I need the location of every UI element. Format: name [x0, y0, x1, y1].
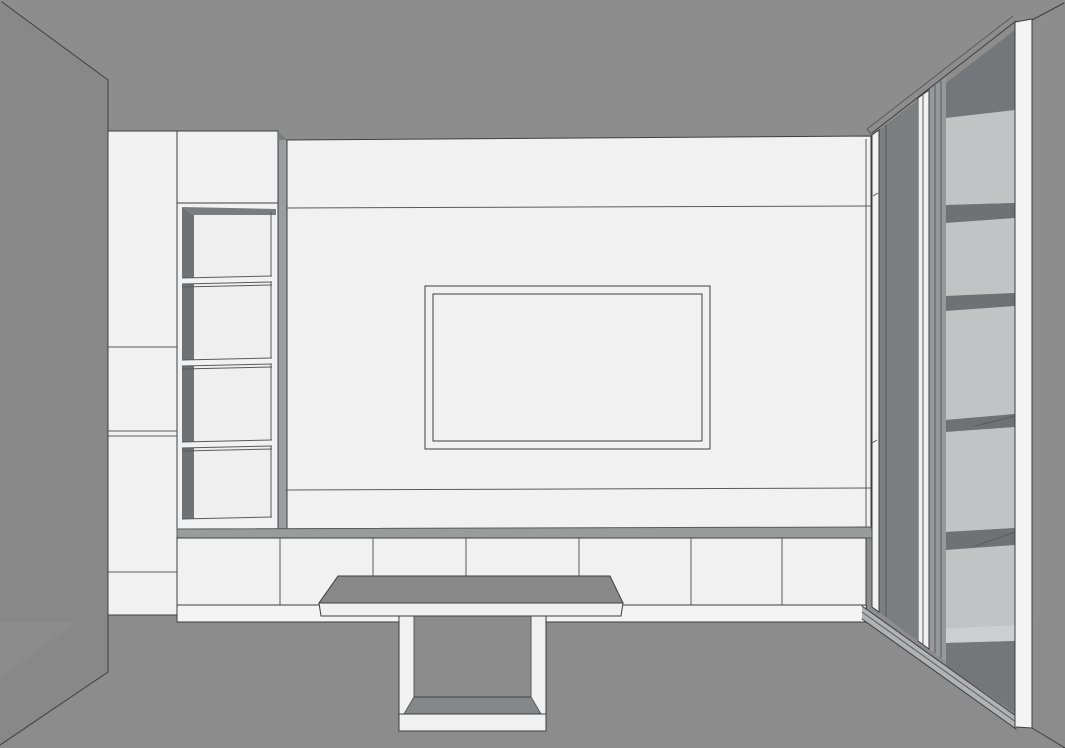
shelf-side-panel [182, 207, 194, 527]
render-viewport[interactable] [0, 0, 1065, 748]
table-top-edge [319, 603, 623, 616]
left-recess-gap [278, 140, 287, 530]
compartment-5 [946, 545, 1015, 628]
sliding-door-far[interactable] [918, 77, 946, 662]
tv-frame-inner [433, 294, 702, 441]
table-base-bar [399, 714, 546, 731]
tall-cabinet-left[interactable] [108, 131, 177, 615]
side-end-board [1015, 19, 1032, 728]
upper-cabinet-box[interactable] [177, 131, 278, 203]
open-shelf-column[interactable] [177, 131, 287, 530]
tall-cabinet-body [108, 131, 177, 615]
base-top-strip [177, 527, 875, 538]
compartment-1 [946, 110, 1015, 205]
compartment-4 [946, 427, 1015, 532]
far-door-glass [929, 77, 946, 662]
near-door-glass [879, 100, 918, 641]
scene-canvas[interactable] [0, 0, 1065, 748]
near-door-stile [872, 130, 879, 612]
tv-wall-panel[interactable] [278, 136, 871, 530]
compartment-3 [946, 306, 1015, 420]
table-leg-opening [414, 616, 531, 697]
table-top [319, 576, 623, 603]
table-loop-inner-face [404, 697, 541, 714]
sliding-door-near[interactable] [872, 100, 918, 641]
compartment-2 [946, 218, 1015, 296]
cabinet-kick-band [946, 625, 1015, 643]
